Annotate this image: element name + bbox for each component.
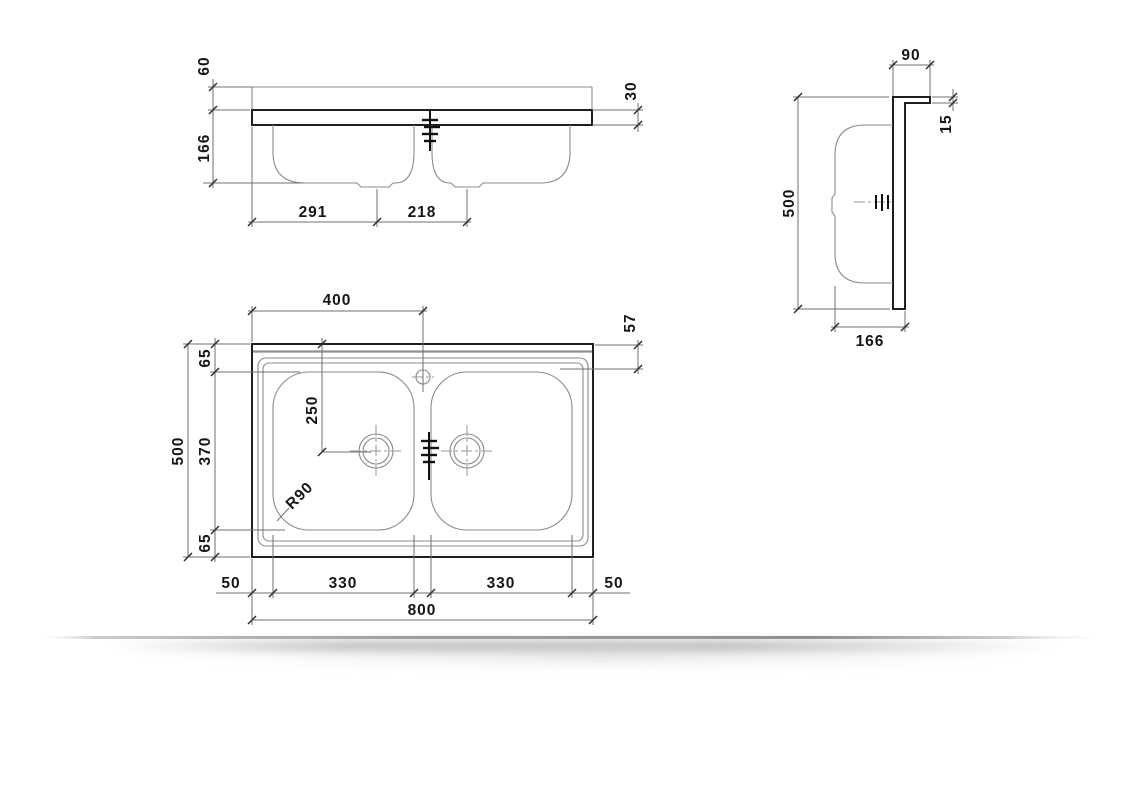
dim-rim-thickness: 30 [623,81,640,100]
dim-overall-width: 800 [408,602,437,619]
dim-drain-from-back: 250 [304,396,321,425]
dim-left-bowl-width: 330 [329,575,358,592]
dim-drain-left-offset: 291 [299,204,328,221]
front-upstand-edge [252,87,592,110]
dim-right-bowl-width: 330 [487,575,516,592]
dim-tap-hole-offset: 400 [323,292,352,309]
sink-drawing-canvas: 60 166 30 291 218 [0,0,1140,800]
front-left-bowl [273,125,414,187]
dim-upstand-height: 60 [196,56,213,75]
dim-right-margin: 50 [604,575,623,592]
side-bowl [832,125,893,283]
dim-back-edge-height: 90 [901,47,920,64]
dim-drain-spacing: 218 [408,204,437,221]
front-dimensions: 60 166 30 291 218 [196,56,643,227]
floor-shadow [30,636,1116,662]
side-dimensions: 90 15 500 166 [781,47,958,350]
dim-bowl-front-to-back: 370 [197,437,214,466]
technical-drawing-page: 60 166 30 291 218 [0,0,1140,800]
plan-view: 400 57 65 250 370 500 65 R90 50 330 330 … [170,292,643,625]
dim-section-depth: 166 [856,333,885,350]
dim-plan-depth: 500 [170,437,187,466]
dim-front-margin: 65 [197,533,214,552]
dim-side-depth: 500 [781,189,798,218]
front-right-bowl [432,125,570,187]
side-view: 90 15 500 166 [781,47,958,350]
front-rim-bar [252,110,592,125]
dim-upstand-thickness: 15 [938,114,955,133]
dim-back-to-drainer: 57 [622,313,639,332]
dim-bowl-depth: 166 [196,134,213,163]
dim-left-margin: 50 [221,575,240,592]
side-rim-plate [893,97,930,309]
dim-back-margin: 65 [197,348,214,367]
front-view: 60 166 30 291 218 [196,56,643,227]
